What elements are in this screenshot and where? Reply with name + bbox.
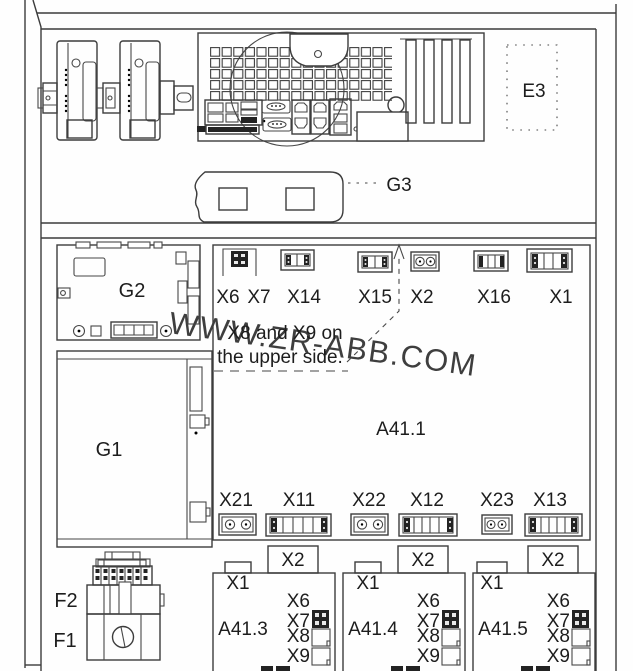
unit-label: A41.4	[348, 619, 398, 640]
note-line-1: X8 and X9 on	[227, 323, 342, 344]
din-rail-clamp	[160, 81, 193, 114]
connector-x11	[266, 514, 331, 536]
x8-label: X8	[417, 626, 440, 647]
ethernet-ports-2	[311, 100, 329, 134]
x7-connector	[312, 610, 329, 628]
label-x12: X12	[410, 490, 444, 511]
x2-label: X2	[541, 550, 564, 571]
serial-port-1	[262, 100, 290, 113]
power-switch	[197, 126, 206, 132]
label-x14: X14	[287, 287, 321, 308]
a41-1-bottom-labels: X21 X11 X22 X12 X23 X13	[219, 490, 567, 511]
g3-plate: G3	[195, 172, 411, 222]
g3-label: G3	[386, 175, 411, 196]
x1-connector	[477, 562, 507, 573]
connector-x15	[358, 252, 392, 272]
label-x13: X13	[533, 490, 567, 511]
bottom-shelf: F2 F1 X2 X1 A41.3 X6 X7 X8 X9	[53, 546, 595, 671]
x1-label: X1	[480, 573, 503, 594]
bottom-connector	[391, 666, 403, 671]
connector-x22	[351, 514, 388, 535]
connector-x21	[219, 514, 256, 535]
label-x21: X21	[219, 490, 253, 511]
label-x7: X7	[247, 287, 270, 308]
computer-unit	[197, 32, 484, 146]
a41-1-label: A41.1	[376, 419, 426, 440]
leader-arrowhead	[394, 245, 404, 259]
terminal-dots	[128, 69, 130, 112]
usb-port-stack	[330, 99, 351, 135]
x7-connector	[442, 610, 459, 628]
connector-x6x7	[231, 251, 248, 267]
fuse-assembly: F2 F1	[53, 552, 164, 660]
a41-1-top-labels: X6 X7 X14 X15 X2 X16 X1	[216, 287, 572, 308]
unit-label: A41.5	[478, 619, 528, 640]
connector-x2	[411, 252, 439, 271]
serial-port-2	[263, 118, 291, 131]
label-x11: X11	[283, 490, 315, 511]
e3-placeholder: E3	[507, 45, 557, 130]
terminal-dots	[65, 69, 67, 112]
bottom-connector	[536, 666, 550, 671]
unit-label: A41.3	[218, 619, 268, 640]
x2-label: X2	[281, 550, 304, 571]
diagram-canvas: WWW.ZR-ABB.COM	[0, 0, 633, 671]
x9-label: X9	[547, 646, 570, 667]
x6-label: X6	[417, 591, 440, 612]
connector-x14	[281, 250, 314, 270]
connector-x13	[525, 514, 582, 536]
label-x23: X23	[480, 490, 514, 511]
f1-label: F1	[53, 630, 76, 652]
x1-label: X1	[356, 573, 379, 594]
label-x15: X15	[358, 287, 392, 308]
f2-label: F2	[54, 590, 77, 612]
bottom-connector	[276, 666, 290, 671]
bottom-connector	[521, 666, 533, 671]
label-x22: X22	[352, 490, 386, 511]
x1-connector	[355, 562, 381, 573]
x8-label: X8	[287, 626, 310, 647]
bottom-connector	[406, 666, 420, 671]
x9-label: X9	[417, 646, 440, 667]
note-line-2: the upper side.	[217, 347, 343, 368]
handle-notch	[290, 34, 348, 66]
x7-connector	[572, 610, 589, 628]
drive-unit-a41-4: X2 X1 A41.4 X6 X7 X8 X9	[343, 546, 465, 671]
drive-unit-a41-3: X2 X1 A41.3 X6 X7 X8 X9	[213, 546, 335, 671]
label-x1: X1	[549, 287, 572, 308]
top-shelf: E3 G3	[38, 32, 557, 222]
ethernet-ports-1	[292, 100, 310, 134]
din-module-1	[38, 41, 97, 140]
expansion-slots	[400, 39, 472, 123]
connector-x1	[527, 249, 572, 272]
mid-shelf: G2 G1 A41.1	[57, 242, 590, 547]
connector-x12	[399, 514, 457, 536]
a41-1-top-connectors	[223, 249, 572, 276]
screw-boss	[388, 97, 404, 113]
io-panel	[197, 97, 408, 141]
bottom-connector	[261, 666, 273, 671]
connector-x23	[482, 515, 512, 534]
cabinet-layout-diagram: WWW.ZR-ABB.COM	[0, 0, 633, 671]
x2-label: X2	[411, 550, 434, 571]
e3-label: E3	[522, 81, 545, 102]
x9-label: X9	[287, 646, 310, 667]
g1-label: G1	[96, 439, 123, 461]
label-x2: X2	[410, 287, 433, 308]
din-module-2	[97, 41, 160, 140]
blank-plate	[357, 112, 408, 141]
g2-label: G2	[119, 280, 146, 302]
x1-connector	[225, 562, 251, 573]
label-x16: X16	[477, 287, 511, 308]
a41-1-unit: A41.1	[213, 245, 590, 540]
x1-label: X1	[226, 573, 249, 594]
terminal-screws	[96, 569, 148, 580]
a41-1-bottom-connectors	[219, 514, 582, 536]
watermark-text: WWW.ZR-ABB.COM	[167, 305, 479, 383]
x6-label: X6	[547, 591, 570, 612]
connector-x16	[474, 251, 508, 271]
g1-unit: G1	[57, 351, 212, 547]
label-x6: X6	[216, 287, 239, 308]
x8-label: X8	[547, 626, 570, 647]
x6-label: X6	[287, 591, 310, 612]
drive-unit-a41-5: X2 X1 A41.5 X6 X7 X8 X9	[473, 546, 595, 671]
